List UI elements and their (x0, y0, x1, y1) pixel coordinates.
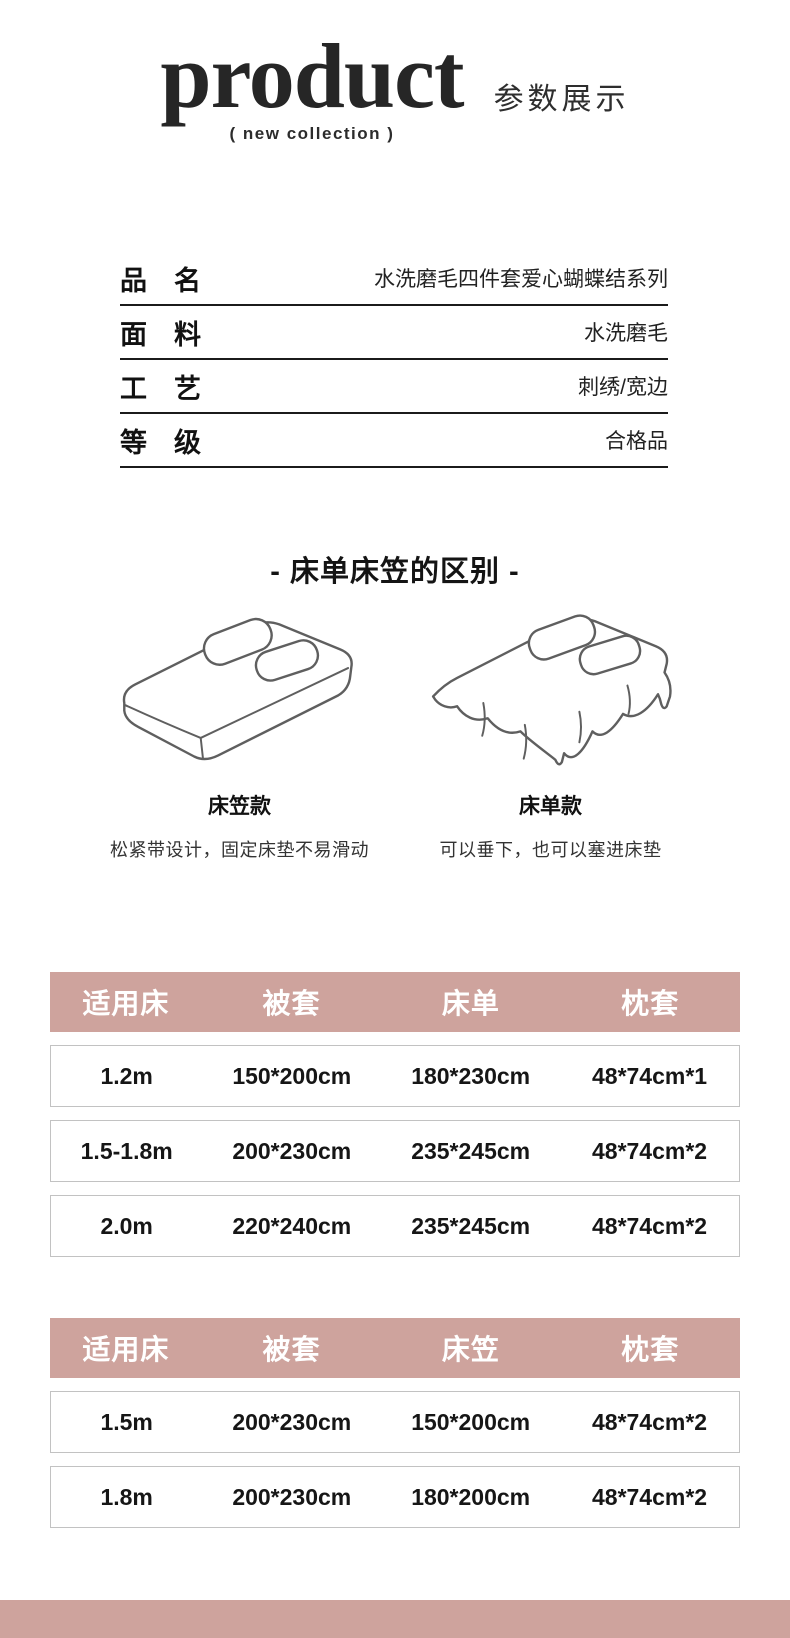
spec-value: 水洗磨毛 (584, 317, 668, 347)
column-header: 枕套 (561, 982, 740, 1022)
size-table-fitted-sheet: 适用床 被套 床笠 枕套 1.5m 200*230cm 150*200cm 48… (50, 1318, 740, 1528)
bed-comparison: 床笠款 松紧带设计，固定床垫不易滑动 床单款 可以垂下，也可以塞进床垫 (0, 598, 790, 862)
table-row: 1.5-1.8m 200*230cm 235*245cm 48*74cm*2 (50, 1120, 740, 1182)
table-row: 1.8m 200*230cm 180*200cm 48*74cm*2 (50, 1466, 740, 1528)
spec-value: 水洗磨毛四件套爱心蝴蝶结系列 (374, 263, 668, 293)
fitted-sheet-column: 床笠款 松紧带设计，固定床垫不易滑动 (92, 598, 387, 862)
collection-tagline: ( new collection ) (230, 124, 395, 144)
cell-bed-size: 1.8m (51, 1484, 202, 1511)
cell-pillowcase: 48*74cm*2 (560, 1409, 739, 1436)
spec-label: 品 名 (120, 259, 201, 298)
cell-duvet-cover: 200*230cm (202, 1138, 381, 1165)
cell-pillowcase: 48*74cm*1 (560, 1063, 739, 1090)
bed-style-name: 床单款 (403, 790, 698, 820)
bed-style-name: 床笠款 (92, 790, 387, 820)
column-header: 适用床 (50, 982, 202, 1022)
spec-label: 等 级 (120, 421, 201, 460)
spec-label: 面 料 (120, 313, 201, 352)
cell-duvet-cover: 200*230cm (202, 1409, 381, 1436)
cell-bed-size: 1.2m (51, 1063, 202, 1090)
column-header: 被套 (202, 982, 381, 1022)
cell-fitted-sheet: 180*200cm (381, 1484, 560, 1511)
size-table-flat-sheet: 适用床 被套 床单 枕套 1.2m 150*200cm 180*230cm 48… (50, 972, 740, 1257)
page-header: product ( new collection ) 参数展示 (0, 30, 790, 144)
spec-row-grade: 等 级 合格品 (120, 414, 668, 468)
flat-sheet-column: 床单款 可以垂下，也可以塞进床垫 (403, 598, 698, 862)
cell-duvet-cover: 150*200cm (202, 1063, 381, 1090)
column-header: 被套 (202, 1328, 381, 1368)
cell-sheet: 235*245cm (381, 1138, 560, 1165)
cell-duvet-cover: 220*240cm (202, 1213, 381, 1240)
table-row: 1.5m 200*230cm 150*200cm 48*74cm*2 (50, 1391, 740, 1453)
table-row: 2.0m 220*240cm 235*245cm 48*74cm*2 (50, 1195, 740, 1257)
cell-duvet-cover: 200*230cm (202, 1484, 381, 1511)
cell-pillowcase: 48*74cm*2 (560, 1138, 739, 1165)
column-header: 床笠 (381, 1328, 560, 1368)
cell-bed-size: 2.0m (51, 1213, 202, 1240)
spec-label: 工 艺 (120, 367, 201, 406)
cell-sheet: 180*230cm (381, 1063, 560, 1090)
bed-style-description: 松紧带设计，固定床垫不易滑动 (92, 836, 387, 862)
spec-value: 刺绣/宽边 (578, 371, 668, 401)
cell-sheet: 235*245cm (381, 1213, 560, 1240)
column-header: 适用床 (50, 1328, 202, 1368)
cell-bed-size: 1.5-1.8m (51, 1138, 202, 1165)
spec-value: 合格品 (605, 425, 668, 455)
table-row: 1.2m 150*200cm 180*230cm 48*74cm*1 (50, 1045, 740, 1107)
column-header: 枕套 (561, 1328, 740, 1368)
cell-pillowcase: 48*74cm*2 (560, 1484, 739, 1511)
comparison-title: - 床单床笠的区别 - (0, 548, 790, 590)
cell-fitted-sheet: 150*200cm (381, 1409, 560, 1436)
flat-sheet-bed-icon (420, 598, 682, 784)
spec-row-fabric: 面 料 水洗磨毛 (120, 306, 668, 360)
fitted-sheet-bed-icon (109, 598, 371, 784)
footer-accent-band (0, 1600, 790, 1638)
spec-row-name: 品 名 水洗磨毛四件套爱心蝴蝶结系列 (120, 252, 668, 306)
spec-row-craft: 工 艺 刺绣/宽边 (120, 360, 668, 414)
size-table-header: 适用床 被套 床单 枕套 (50, 972, 740, 1032)
section-subtitle: 参数展示 (494, 74, 630, 118)
cell-bed-size: 1.5m (51, 1409, 202, 1436)
cell-pillowcase: 48*74cm*2 (560, 1213, 739, 1240)
bed-style-description: 可以垂下，也可以塞进床垫 (403, 836, 698, 862)
column-header: 床单 (381, 982, 560, 1022)
size-table-header: 适用床 被套 床笠 枕套 (50, 1318, 740, 1378)
page-title: product (160, 30, 463, 122)
spec-list: 品 名 水洗磨毛四件套爱心蝴蝶结系列 面 料 水洗磨毛 工 艺 刺绣/宽边 等 … (120, 252, 668, 468)
